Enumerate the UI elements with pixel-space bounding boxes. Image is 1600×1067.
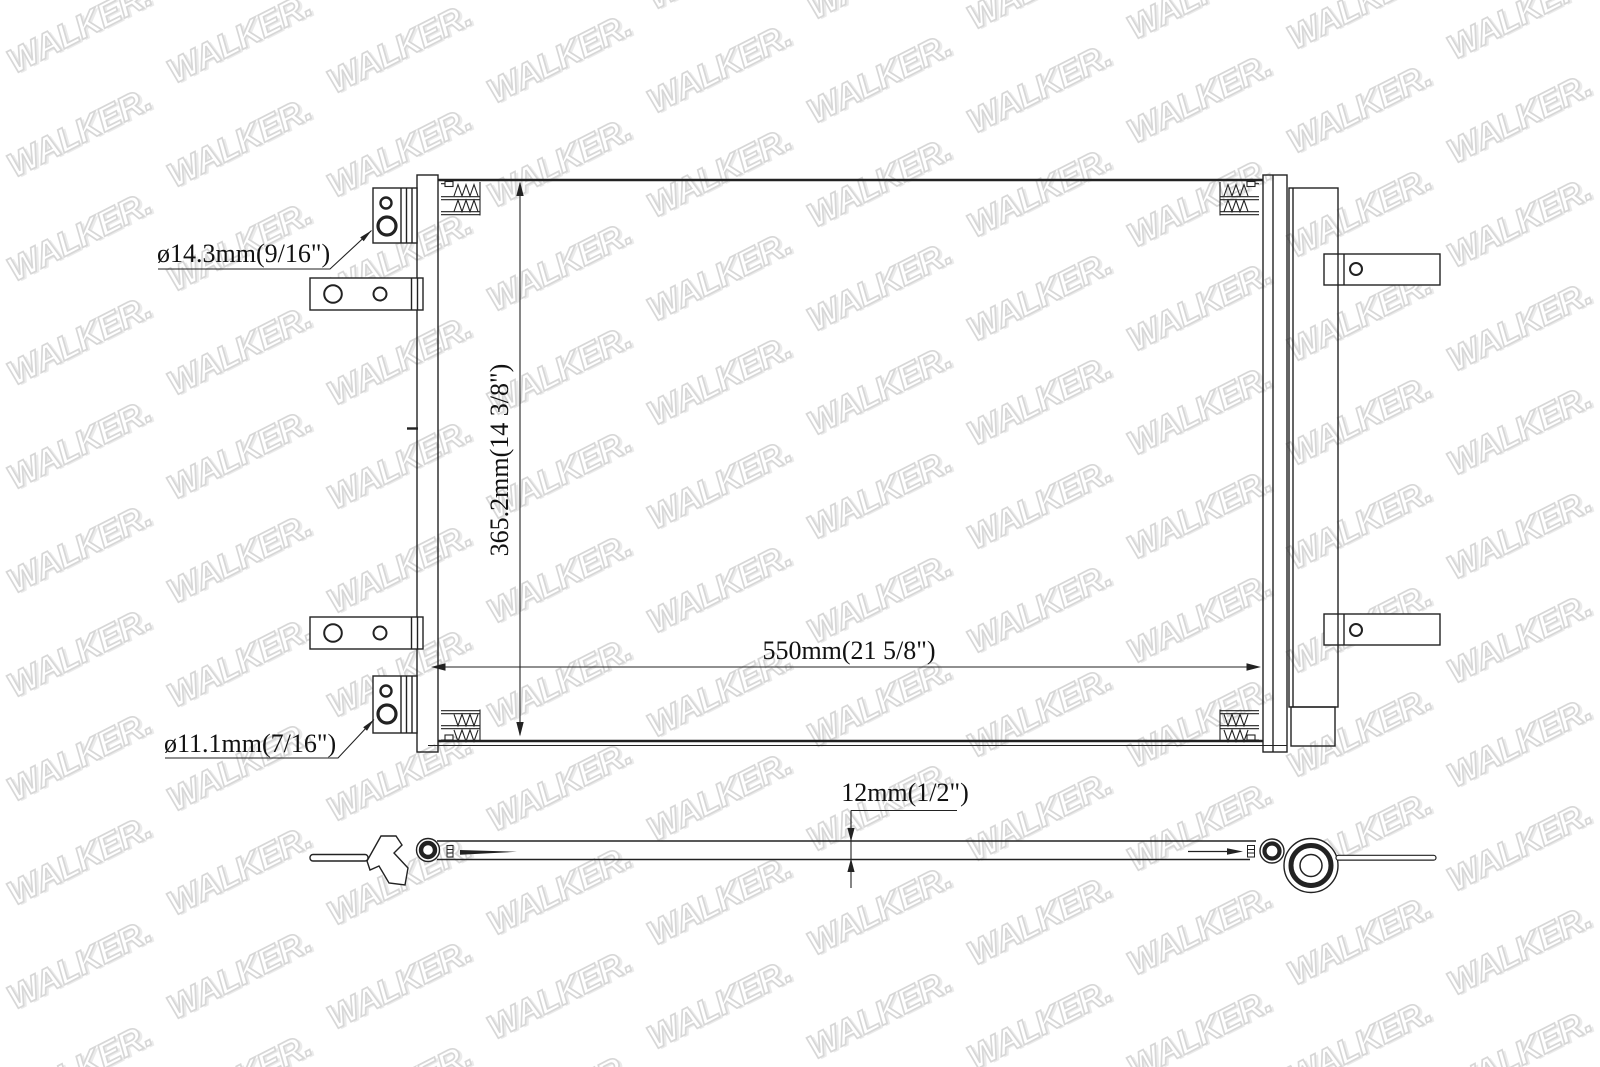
- dim-core-width-label: 550mm(21 5/8"): [762, 636, 935, 665]
- outlet-fitting: [373, 676, 417, 733]
- port-top-label: ø14.3mm(9/16"): [157, 239, 330, 268]
- mount-bracket-bottom-right: [1324, 614, 1440, 645]
- mount-bracket-bottom-left: [310, 617, 423, 649]
- side-hatch-left: [447, 846, 453, 858]
- condenser-drawing: 550mm(21 5/8") 365.2mm(14 3/8") 12mm(1/2…: [0, 0, 1600, 1067]
- inlet-fitting: [373, 188, 417, 243]
- side-sliver-left: [460, 850, 517, 855]
- fins-bottom-left: [441, 710, 480, 742]
- side-diagonal-bracket: [367, 836, 408, 885]
- fins-top-left: [441, 182, 480, 216]
- mount-bracket-top-right: [1324, 254, 1440, 285]
- right-header-strip: [1263, 175, 1287, 752]
- side-hatch-right: [1248, 846, 1255, 858]
- dim-core-height-label: 365.2mm(14 3/8"): [485, 364, 514, 557]
- technical-drawing-canvas: WALKER.WALKER.WALKER.WALKER.WALKER.WALKE…: [0, 0, 1600, 1067]
- dim-thickness-label: 12mm(1/2"): [841, 778, 969, 807]
- dim-thickness-lines: [847, 811, 957, 889]
- front-view: [310, 175, 1440, 752]
- side-tail: [1336, 855, 1436, 860]
- left-header-strip: [417, 175, 438, 752]
- side-left-bar: [310, 855, 368, 862]
- fins-top-right: [1220, 182, 1259, 216]
- side-view: [310, 836, 1436, 893]
- dim-height-lines: [516, 182, 523, 737]
- mount-bracket-top-left: [310, 278, 423, 310]
- fins-bottom-right: [1220, 710, 1259, 742]
- port-bottom-label: ø11.1mm(7/16"): [164, 729, 336, 758]
